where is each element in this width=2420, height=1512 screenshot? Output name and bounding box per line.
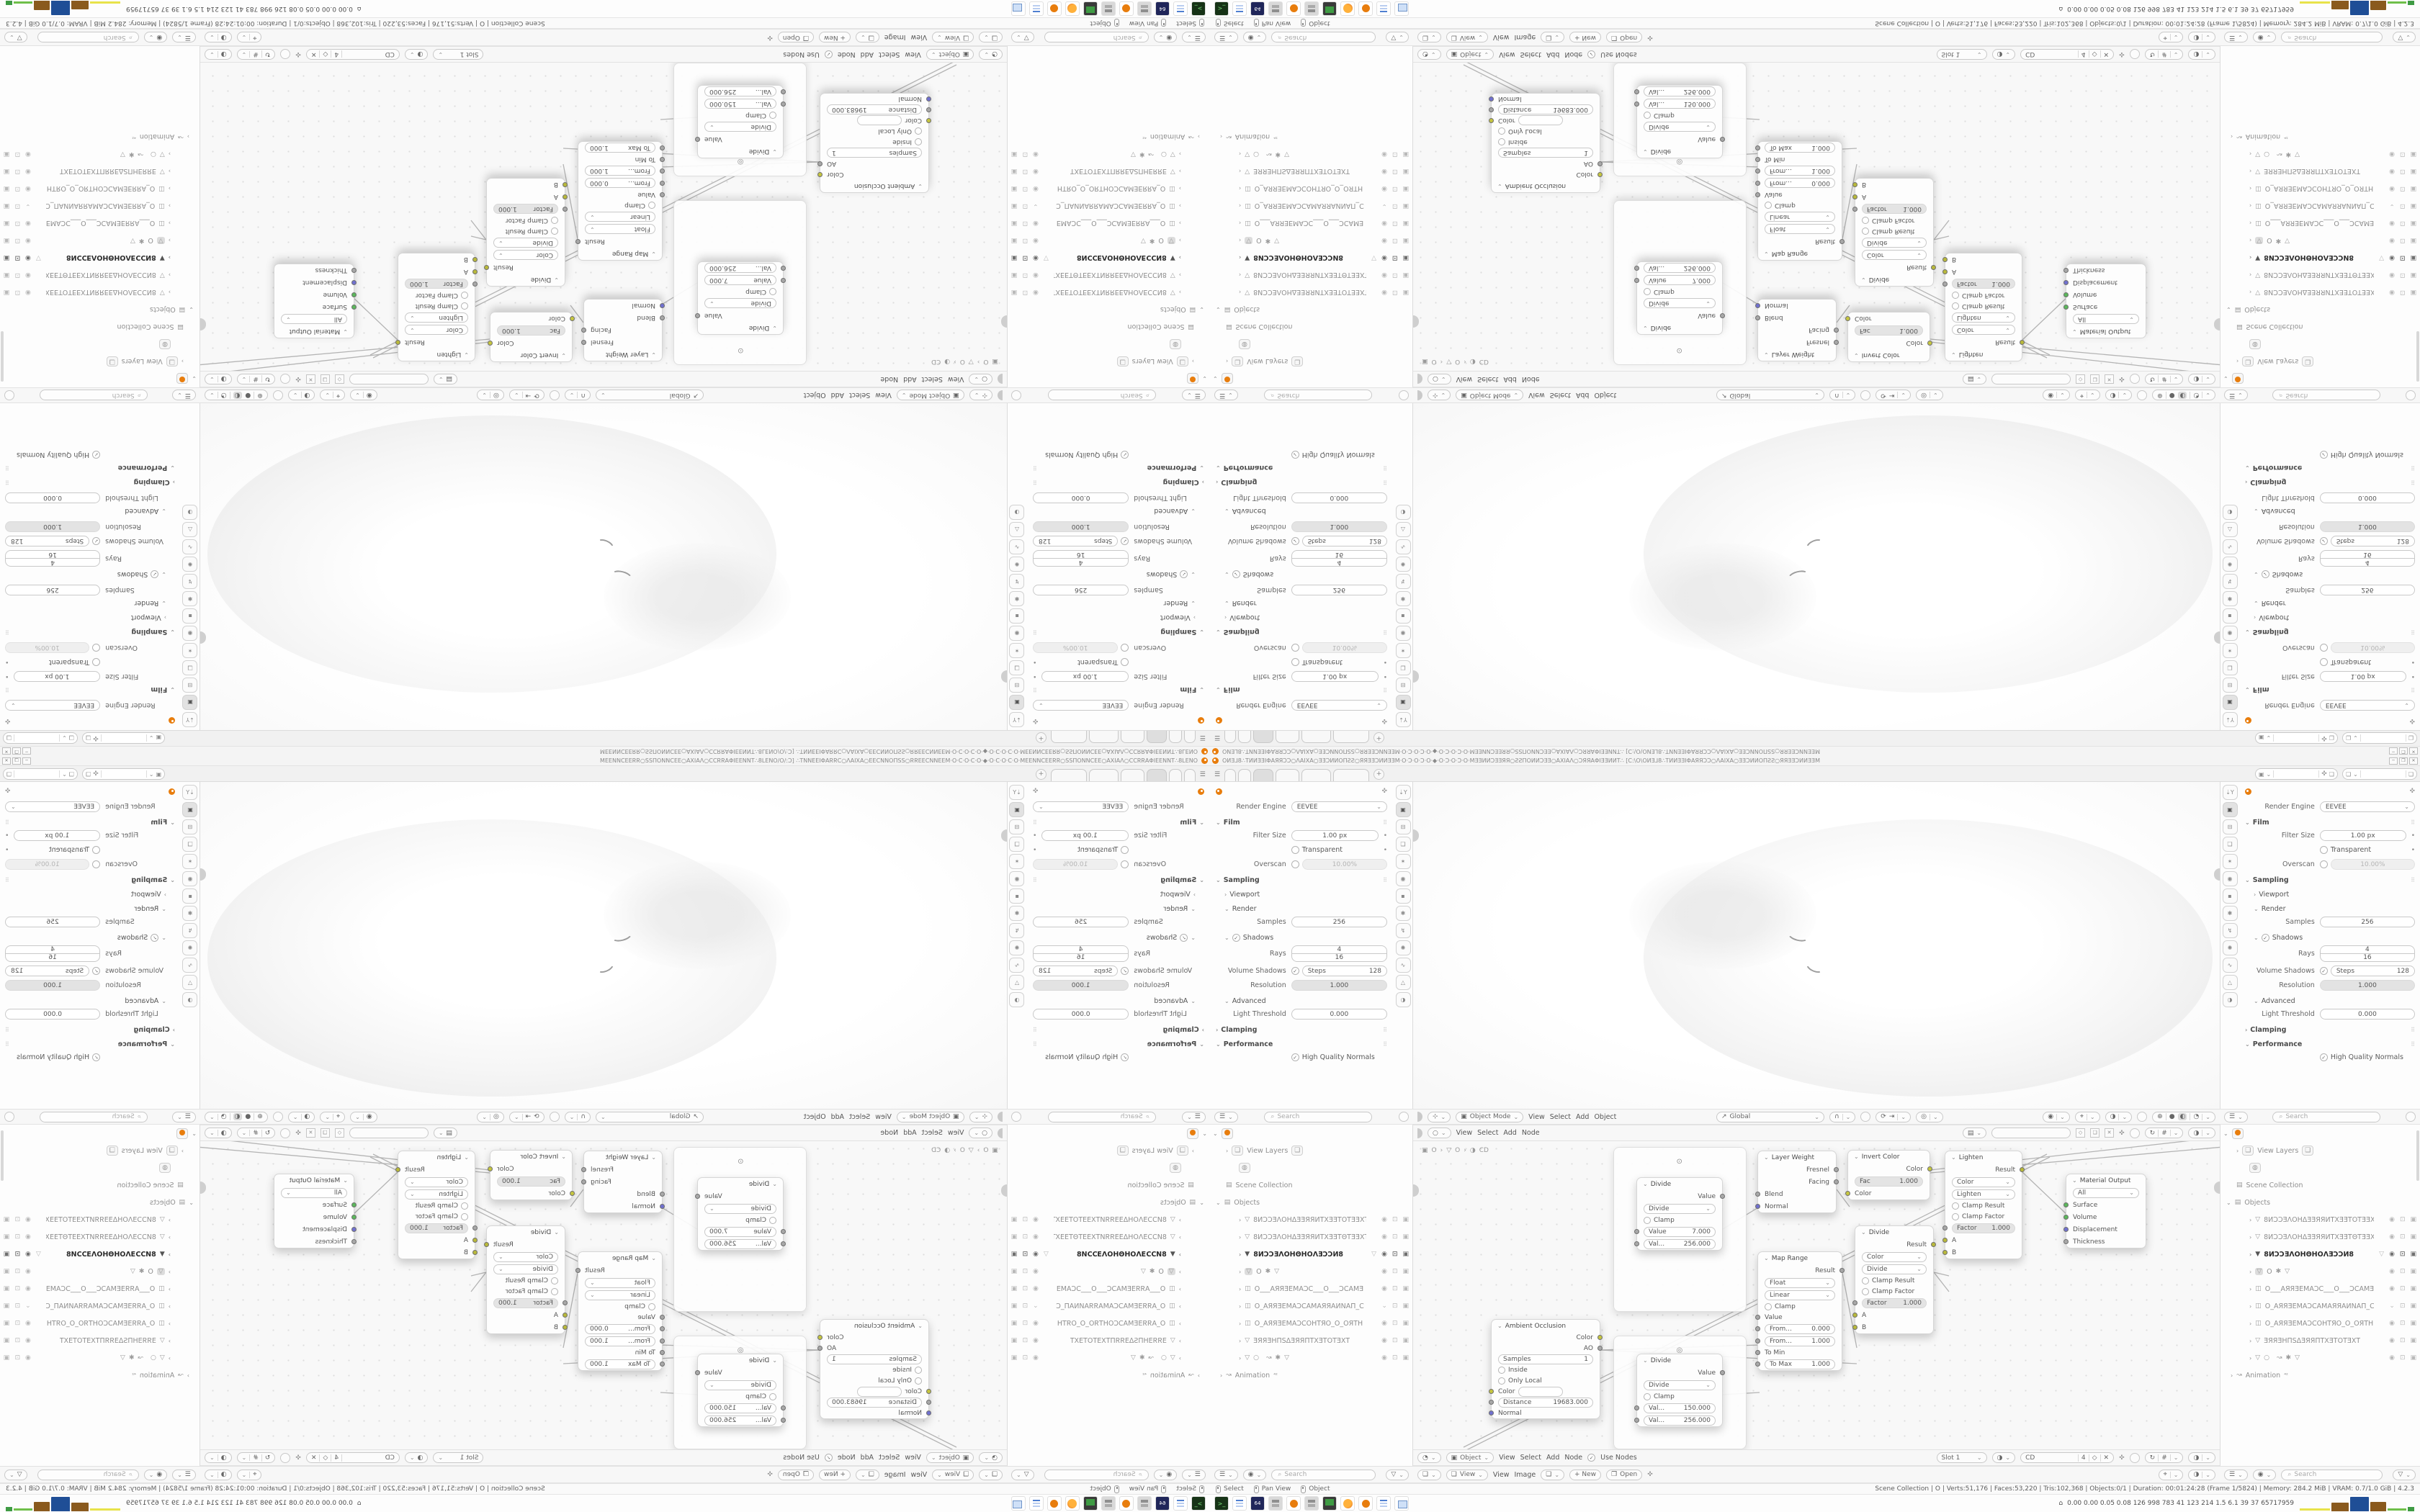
camera-icon[interactable]: ▣ <box>4 254 10 261</box>
add-workspace-button[interactable]: + <box>1036 769 1047 780</box>
tab-output-icon[interactable]: ⊟ <box>2223 819 2238 834</box>
blender-app-icon[interactable] <box>1119 1 1134 16</box>
render-engine-select[interactable]: EEVEE⌄ <box>2320 700 2415 711</box>
tab-output-icon[interactable]: ⊟ <box>183 678 198 693</box>
workspace-tab[interactable] <box>1301 769 1331 781</box>
collapse-icon[interactable]: ⌄ <box>2389 202 2395 210</box>
blender-app-icon[interactable] <box>1119 1496 1134 1511</box>
tab-world-icon[interactable]: ◉ <box>1010 871 1025 886</box>
outliner-object-row[interactable]: ›▽8ИƆƆƎΛΟΗΔƎƎЯЯИΤΧƎƎΤΘΤƎƎΧΤ◉⊡▣ <box>2220 1228 2420 1246</box>
socket-color-out[interactable] <box>488 341 493 346</box>
tab-scene-icon[interactable]: ✶ <box>2223 854 2238 869</box>
fake-user-icon[interactable]: ◇ <box>323 51 331 58</box>
gizmos-button[interactable]: ⌖⌄ <box>237 1470 262 1480</box>
clamp-factor-checkbox[interactable] <box>1952 292 1959 300</box>
viewport-3d[interactable] <box>200 403 1007 730</box>
filter-size-field[interactable]: 1.00 px <box>14 830 100 841</box>
fake-user-icon[interactable]: ◇ <box>2076 1128 2085 1138</box>
pin-icon[interactable]: ✜ <box>295 51 301 58</box>
tab-object-icon[interactable]: ▪ <box>183 888 198 904</box>
menu-node[interactable]: Node <box>838 50 856 58</box>
hq-normals-checkbox[interactable]: ✓ <box>1291 1053 1299 1061</box>
tab-filter-icon[interactable]: ⇣Y <box>2223 785 2238 800</box>
outliner-root[interactable]: ⌄ <box>2220 370 2420 387</box>
section-shadows[interactable]: ⌄✓Shadows <box>5 934 166 942</box>
maximize-button[interactable]: ❐ <box>12 757 21 765</box>
camera-icon[interactable]: ▣ <box>1011 168 1018 175</box>
fake-user-icon[interactable]: ◇ <box>335 374 344 384</box>
clamp-checkbox[interactable] <box>648 1303 655 1310</box>
eye-icon[interactable]: ◉ <box>25 289 31 296</box>
calculator-icon[interactable] <box>1137 1496 1152 1511</box>
menu-select[interactable]: Select <box>922 375 943 383</box>
outliner-object-row-selected[interactable]: ›▽O✱▽◉⊡▣ <box>2220 1263 2420 1280</box>
outliner-scene-collection[interactable]: ▤Scene Collection <box>0 1176 200 1194</box>
outliner-object-row[interactable]: ›◫O_АЯЯƎEMАƆCOHTЯO_O_OЯTH◉⊡▣ <box>1210 1315 1412 1332</box>
tab-output-icon[interactable]: ⊟ <box>1396 819 1411 834</box>
data-type-select[interactable]: Color⌄ <box>1862 1252 1927 1262</box>
socket-result-out[interactable] <box>1931 1242 1936 1247</box>
camera-icon[interactable]: ▣ <box>1011 1251 1018 1258</box>
camera-icon[interactable]: ▣ <box>4 1285 10 1292</box>
section-shadows[interactable]: ⌄✓Shadows <box>5 570 166 578</box>
socket-from-min-in[interactable] <box>660 1326 665 1331</box>
eye-icon[interactable]: ◉ <box>1033 271 1039 279</box>
text-editor-icon-2[interactable] <box>1029 1 1044 16</box>
section-render[interactable]: ⌄Render <box>1033 599 1196 607</box>
toolbar-toggle[interactable] <box>1413 670 1419 683</box>
copy-icon[interactable]: ❏ <box>86 735 91 742</box>
shader-type-select[interactable]: ▣Object⌄ <box>1446 1452 1494 1463</box>
eye-icon[interactable]: ◉ <box>25 220 31 227</box>
search-input[interactable]: ⌕Search <box>1044 1470 1149 1480</box>
outliner-object-row[interactable]: ›◫O___АЯЯƎEMАƆC___O___ƆCАMƎ◉⊡▣ <box>1210 1280 1412 1297</box>
transform-pivot-button[interactable]: ⟳⇥⌄ <box>1875 390 1911 401</box>
eye-icon[interactable]: ◉ <box>2389 1320 2395 1327</box>
outliner-object-row[interactable]: ›◫O_АЯЯƎEMАƆCAMАЯЯАИNАΠ_C⌄⊡▣ <box>1210 1297 1412 1315</box>
menu-node[interactable]: Node <box>1522 375 1540 383</box>
target-select[interactable]: All⌄ <box>2073 1188 2139 1198</box>
tab-scene-icon[interactable]: ✶ <box>1396 854 1411 869</box>
editor-type-button[interactable]: ◔⌄ <box>979 49 1003 60</box>
node-divide-2[interactable]: ⌄Divide Value Divide⌄ Clamp Val...150.00… <box>1636 1354 1723 1427</box>
camera-icon[interactable]: ▣ <box>1402 168 1409 175</box>
socket-value-out[interactable] <box>695 1370 700 1375</box>
outliner-world[interactable]: ◍ <box>0 336 200 353</box>
socket-value-in[interactable] <box>781 1229 786 1234</box>
section-performance[interactable]: ⌄Performance⠿ <box>2245 1040 2415 1048</box>
monitor-icon[interactable] <box>1322 1496 1337 1511</box>
camera-icon[interactable]: ▣ <box>1011 1268 1018 1275</box>
shading-mode-switch[interactable]: ⊕●◐◔⌄ <box>2152 390 2215 401</box>
outliner-object-row[interactable]: ›◫O_АЯЯƎEMАƆCOHTЯO_O_OЯTH◉⊡▣ <box>0 1315 200 1332</box>
samples-field[interactable]: Samples1 <box>827 1354 922 1364</box>
outliner-view-layers[interactable]: ›❏View Layers❏ <box>1008 1142 1210 1159</box>
close-button[interactable]: ✕ <box>2409 757 2418 765</box>
resolution-slider[interactable]: 1.000 <box>1033 980 1129 991</box>
from-min-field[interactable]: From...0.000 <box>1765 1324 1835 1334</box>
section-performance[interactable]: ⌄Performance⠿ <box>5 1040 175 1048</box>
clamp-checkbox[interactable] <box>769 289 776 296</box>
terminal-icon[interactable]: >_ <box>1191 1496 1206 1511</box>
volume-shadows-checkbox[interactable]: ✓ <box>92 537 100 545</box>
screen-icon[interactable]: ⊡ <box>1392 1320 1398 1327</box>
snap-grid-button[interactable]: ↻#⌄ <box>2145 1452 2184 1463</box>
search-input[interactable]: ⌕Search <box>1048 390 1156 401</box>
interpolation-select[interactable]: Linear⌄ <box>1765 1290 1835 1300</box>
workspace-tab[interactable] <box>1276 731 1299 743</box>
section-advanced[interactable]: ⌄Advanced <box>5 997 166 1005</box>
snapping-toggle[interactable] <box>280 374 290 384</box>
pin-icon[interactable]: ✜ <box>295 1130 301 1137</box>
rays-field[interactable]: 4 <box>5 945 100 954</box>
view-layer-selector[interactable]: ❏⌄ ❏ <box>3 732 78 744</box>
tab-object-icon[interactable]: ▪ <box>1010 608 1025 624</box>
interpolation-select[interactable]: Linear⌄ <box>585 212 655 222</box>
menu-view[interactable]: View <box>875 1113 892 1121</box>
outliner-object-row[interactable]: ›▽ƎЯЯƎHΠSΔƎЯЯΠΤΧƎΤΟΤƎΧΤ◉⊡▣ <box>1008 163 1210 180</box>
section-viewport[interactable]: ›Viewport <box>2254 613 2415 621</box>
overscan-field[interactable]: 10.00% <box>5 642 89 653</box>
new-image-button[interactable]: + New <box>819 32 851 43</box>
menu-view[interactable]: View <box>911 34 928 42</box>
screen-icon[interactable]: ⊡ <box>15 271 21 279</box>
socket-a-in[interactable] <box>1942 270 1948 275</box>
search-input[interactable]: ⌕Search <box>40 1112 148 1122</box>
blend-mode-select[interactable]: Lighten⌄ <box>1952 313 2015 323</box>
steps-field[interactable]: 16 <box>2320 954 2415 962</box>
outliner-object-row[interactable]: ›◫O_АЯЯƎEMАƆCOHTЯO_O_OЯTH◉⊡▣ <box>1008 1315 1210 1332</box>
copy-icon[interactable]: ❏ <box>6 771 12 778</box>
menu-object[interactable]: Object <box>804 1113 826 1121</box>
tab-material-icon[interactable]: ◑ <box>2223 505 2238 520</box>
pin-icon[interactable]: ✜ <box>767 34 773 41</box>
material-browse-button[interactable]: ◑⌄ <box>1992 49 2016 60</box>
tab-filter-icon[interactable]: ⇣Y <box>1010 712 1025 727</box>
menu-view[interactable]: View <box>1499 1454 1515 1462</box>
tab-modifiers-icon[interactable]: ✱ <box>1010 591 1025 606</box>
snap-grid-button[interactable]: ↻#⌄ <box>237 1452 276 1463</box>
search-input[interactable]: ⌕Search <box>1264 390 1372 401</box>
fac-slider[interactable]: Fac1.000 <box>497 326 565 336</box>
tab-particles-icon[interactable]: ↯ <box>183 574 198 589</box>
eye-icon[interactable]: ◉ <box>25 150 31 158</box>
operation-select[interactable]: Divide⌄ <box>704 299 776 309</box>
outliner-scene-collection[interactable]: ▤Scene Collection <box>2220 318 2420 336</box>
screen-icon[interactable]: ⊡ <box>15 185 21 192</box>
socket-value-in[interactable] <box>1634 1229 1639 1234</box>
camera-icon[interactable]: ▣ <box>2410 271 2416 279</box>
slot-select[interactable]: Slot 1⌄ <box>1937 49 1987 60</box>
socket-color-out[interactable] <box>1597 1335 1603 1340</box>
snapping-toggle[interactable] <box>280 1453 290 1463</box>
screen-icon[interactable]: ⊡ <box>2400 1216 2406 1223</box>
overlays-button[interactable]: ◑⌄ <box>2105 1112 2133 1122</box>
clamp-factor-checkbox[interactable] <box>1952 1213 1959 1220</box>
camera-icon[interactable]: ▣ <box>1402 271 1409 279</box>
value-field[interactable]: Val...150.000 <box>704 99 776 109</box>
outliner-object-row[interactable]: ›◫O_АЯЯƎEMАƆCAMАЯЯАИNАΠ_C⌄⊡▣ <box>1210 197 1412 215</box>
filter-size-field[interactable]: 1.00 px <box>14 671 100 682</box>
outliner-object-row[interactable]: ›◫O___АЯЯƎEMАƆC___O___ƆCАMƎ◉⊡▣ <box>1008 215 1210 232</box>
menu-node[interactable]: Node <box>1564 1454 1582 1462</box>
scene-selector[interactable]: ▣⌄ ✜ ❏ <box>82 732 165 744</box>
outliner-view-layers[interactable]: ›❏View Layers❏ <box>2220 1142 2420 1159</box>
overscan-checkbox[interactable] <box>2320 644 2328 652</box>
eye-icon[interactable]: ◉ <box>1033 185 1039 192</box>
editor-type-button[interactable]: ○⌄ <box>969 374 992 384</box>
calculator-icon-2[interactable] <box>1101 1496 1116 1511</box>
socket-to-max-in[interactable] <box>660 1362 665 1367</box>
menu-add[interactable]: Add <box>1503 1129 1516 1137</box>
eye-icon[interactable]: ◉ <box>1033 1354 1039 1362</box>
tab-filter-icon[interactable]: ⇣Y <box>2223 712 2238 727</box>
menu-object[interactable]: Object <box>804 392 826 400</box>
distance-field[interactable]: Distance19683.000 <box>1498 1398 1593 1408</box>
outliner-object-row[interactable]: ›◫O_АЯЯƎEMАƆCOHTЯO_O_OЯTH◉⊡▣ <box>2220 180 2420 197</box>
camera-icon[interactable]: ▣ <box>2410 1354 2416 1362</box>
outliner-objects-collection[interactable]: ⌄▤Objects <box>2220 301 2420 318</box>
data-type-select[interactable]: Float⌄ <box>1765 225 1835 235</box>
value-field[interactable]: Val...256.000 <box>1644 87 1716 97</box>
xray-button[interactable] <box>2137 390 2147 400</box>
firefox-icon[interactable] <box>1340 1 1355 16</box>
clamp-checkbox[interactable] <box>1644 289 1651 296</box>
tab-world-icon[interactable]: ◉ <box>1396 871 1411 886</box>
section-shadows[interactable]: ⌄✓Shadows <box>1224 570 1387 578</box>
search-input[interactable]: ⌕Search <box>37 32 139 43</box>
search-input[interactable]: ⌕Search <box>2272 390 2380 401</box>
eye-icon[interactable]: ◉ <box>2389 185 2395 192</box>
steps-field[interactable]: 16 <box>5 954 100 962</box>
orientation-select[interactable]: ↗Global⌄ <box>596 390 704 401</box>
tab-material-icon[interactable]: ◑ <box>183 505 198 520</box>
outliner-object-row-selected[interactable]: ›▽O✱▽◉⊡▣ <box>2220 232 2420 249</box>
value-field[interactable]: Val...256.000 <box>704 264 776 274</box>
pin-icon[interactable]: ✜ <box>295 1454 301 1462</box>
render-engine-select[interactable]: EEVEE⌄ <box>5 700 100 711</box>
volume-steps-field[interactable]: Steps128 <box>2331 966 2415 976</box>
light-threshold-field[interactable]: 0.000 <box>1033 492 1129 503</box>
overlays-button[interactable]: ◑⌄ <box>2188 374 2215 384</box>
tab-modifiers-icon[interactable]: ✱ <box>2223 906 2238 921</box>
overscan-field[interactable]: 10.00% <box>2331 642 2415 653</box>
outliner-root[interactable]: ⌄ <box>2220 1125 2420 1142</box>
eye-icon[interactable]: ◉ <box>1033 1233 1039 1241</box>
node-lighten[interactable]: ⌄Lighten Result Color⌄ Lighten⌄ Clamp Re… <box>1945 253 2022 361</box>
outliner-root[interactable]: ⌄ <box>0 370 200 387</box>
fac-slider[interactable]: Fac1.000 <box>1855 1176 1923 1187</box>
editor-type-button[interactable]: ☰⌄ <box>172 1112 196 1122</box>
viewport-3d[interactable] <box>1413 782 2220 1109</box>
to-max-field[interactable]: To Max1.000 <box>1765 143 1835 153</box>
material-name-field[interactable] <box>349 374 429 384</box>
tab-object-icon[interactable]: ▪ <box>2223 608 2238 624</box>
light-threshold-field[interactable]: 0.000 <box>1291 1009 1387 1020</box>
tab-object-icon[interactable]: ▪ <box>183 608 198 624</box>
screen-icon[interactable]: ⊡ <box>1392 1233 1398 1241</box>
viewport-3d[interactable] <box>200 782 1007 1109</box>
menu-node[interactable]: Node <box>1522 1129 1540 1137</box>
pin-icon[interactable]: ✜ <box>1381 788 1387 795</box>
transparent-checkbox[interactable] <box>92 846 100 854</box>
eye-icon[interactable]: ◉ <box>1033 150 1039 158</box>
snapping-toggle[interactable] <box>2130 50 2140 60</box>
socket-ao-out[interactable] <box>817 162 823 167</box>
shader-node-editor[interactable]: ▣O › ▽O › ◑CD ⊙ ◎ ⌄Divide Value Divide⌄ … <box>200 63 1007 371</box>
tab-particles-icon[interactable]: ↯ <box>2223 574 2238 589</box>
socket-result-out[interactable] <box>484 1242 489 1247</box>
blend-mode-select[interactable]: Lighten⌄ <box>1952 1189 2015 1200</box>
section-shadows[interactable]: ⌄✓Shadows <box>2254 570 2415 578</box>
menu-add[interactable]: Add <box>1546 1454 1559 1462</box>
factor-slider[interactable]: Factor1.000 <box>1952 279 2015 289</box>
copy-icon[interactable]: ❏ <box>2408 771 2414 778</box>
clamp-checkbox[interactable] <box>1765 202 1772 210</box>
eye-icon[interactable]: ◉ <box>2389 1285 2395 1292</box>
hq-normals-checkbox[interactable]: ✓ <box>1291 451 1299 459</box>
rays-field[interactable]: 4 <box>1033 945 1129 954</box>
screen-icon[interactable]: ⊡ <box>15 1337 21 1344</box>
resolution-slider[interactable]: 1.000 <box>1033 521 1129 532</box>
operation-select[interactable]: Divide⌄ <box>1644 1204 1716 1214</box>
socket-surface-in[interactable] <box>2063 1202 2069 1207</box>
socket-a-in[interactable] <box>1852 195 1857 200</box>
tab-world-icon[interactable]: ◉ <box>1010 626 1025 641</box>
screen-icon[interactable]: ⊡ <box>1023 1320 1028 1327</box>
light-threshold-field[interactable]: 0.000 <box>5 492 100 503</box>
screen-icon[interactable]: ⊡ <box>1392 185 1398 192</box>
outliner-objects-collection[interactable]: ⌄▤Objects <box>1210 1194 1412 1211</box>
resolution-slider[interactable]: 1.000 <box>2320 980 2415 991</box>
menu-select[interactable]: Select <box>1550 392 1571 400</box>
value-field[interactable]: Value7.000 <box>704 1227 776 1237</box>
menu-add[interactable]: Add <box>1576 1113 1589 1121</box>
filter-icon[interactable]: ▽ <box>1371 254 1376 261</box>
socket-factor-in[interactable] <box>1852 1300 1857 1305</box>
menu-select[interactable]: Select <box>922 1129 943 1137</box>
outliner-object-row[interactable]: ›▽8ИƆƆƎΛΟΗΔƎƎЯЯИΤΧƎƎΤΟΤƎƎΧΤ◉⊡▣ <box>0 1211 200 1228</box>
outliner-root[interactable]: ⌄ <box>1008 1125 1210 1142</box>
image-mode-select[interactable]: ❏View⌄ <box>932 32 974 43</box>
socket-color-out[interactable] <box>1927 1166 1932 1171</box>
section-clamping[interactable]: ›Clamping⠿ <box>2245 1026 2415 1034</box>
screen-icon[interactable]: ⊡ <box>2400 237 2406 244</box>
camera-icon[interactable]: ▣ <box>1402 1285 1409 1292</box>
editor-type-button[interactable]: ☰⌄ <box>1182 1470 1206 1480</box>
screen-icon[interactable]: ⊡ <box>1023 1337 1028 1344</box>
resolution-slider[interactable]: 1.000 <box>2320 521 2415 532</box>
tab-object-icon[interactable]: ▪ <box>1396 608 1411 624</box>
socket-b-in[interactable] <box>1942 1250 1948 1255</box>
camera-icon[interactable]: ▣ <box>2410 1233 2416 1241</box>
filter-button[interactable]: ▽⌄ <box>1011 1470 1034 1480</box>
camera-icon[interactable]: ▣ <box>2410 1268 2416 1275</box>
socket-blend-in[interactable] <box>1755 1192 1760 1197</box>
screen-icon[interactable]: ⊡ <box>2400 185 2406 192</box>
camera-icon[interactable]: ▣ <box>1011 202 1018 210</box>
outliner-object-row-active[interactable]: ›▼8ИƆƆƎΛΟΗΘΗΟΛƎƆƆИ8▽◉⊡▣ <box>0 1246 200 1263</box>
tab-physics-icon[interactable]: ✺ <box>1396 940 1411 955</box>
outliner-view-layers[interactable]: ›❏View Layers❏ <box>0 353 200 370</box>
pin-icon[interactable]: ✜ <box>5 788 11 795</box>
outliner-object-row[interactable]: ›◫O_АЯЯƎEMАƆCOHTЯO_O_OЯTH◉⊡▣ <box>2220 1315 2420 1332</box>
node-divide-2[interactable]: ⌄Divide Value Divide⌄ Clamp Val...150.00… <box>697 1354 784 1427</box>
workspace-tab-active[interactable] <box>1147 731 1167 743</box>
tab-output-icon[interactable]: ⊟ <box>1396 678 1411 693</box>
options-button[interactable] <box>1011 390 1021 400</box>
steps-field[interactable]: 16 <box>1291 954 1387 962</box>
add-workspace-button[interactable]: + <box>1036 732 1047 743</box>
node-layer-weight[interactable]: ⌄Layer Weight Fresnel Facing Blend Norma… <box>1757 1151 1837 1213</box>
section-film[interactable]: ⌄Film⠿ <box>5 685 175 693</box>
text-editor-icon-2[interactable] <box>1029 1496 1044 1511</box>
clamp-checkbox[interactable] <box>769 1217 776 1224</box>
copy-icon[interactable]: ❏ <box>321 1128 330 1138</box>
outliner-object-row[interactable]: ›▽8ИƆƆƎΛΟΗΔƎƎЯЯИΤΧƎƎΤΘΤƎƎΧΤ◉⊡▣ <box>2220 266 2420 284</box>
section-render[interactable]: ⌄Render <box>5 905 166 913</box>
socket-value-in[interactable] <box>660 1315 665 1320</box>
outliner-animation[interactable]: ›↝Animation⁴² <box>2220 1367 2420 1384</box>
factor-slider[interactable]: Factor1.000 <box>405 279 468 289</box>
proportional-edit-button[interactable] <box>1860 390 1870 400</box>
menu-image[interactable]: Image <box>884 34 906 42</box>
text-editor-icon[interactable] <box>1232 1496 1247 1511</box>
screen-icon[interactable]: ⊡ <box>1392 1216 1398 1223</box>
node-map-range[interactable]: ⌄Map Range Result Float⌄ Linear⌄ Clamp V… <box>578 1251 663 1371</box>
tab-output-icon[interactable]: ⊟ <box>183 819 198 834</box>
screen-icon[interactable]: ⊡ <box>2400 1337 2406 1344</box>
editor-type-button[interactable]: ☰⌄ <box>172 1470 196 1480</box>
tab-filter-icon[interactable]: ⇣Y <box>183 712 198 727</box>
tab-object-icon[interactable]: ▪ <box>1010 888 1025 904</box>
outliner-object-row[interactable]: ›▽○↝✱▽◉⊡▣ <box>0 145 200 163</box>
eye-icon[interactable]: ◉ <box>25 1268 31 1275</box>
outliner-world[interactable]: ◍ <box>2220 336 2420 353</box>
screen-icon[interactable]: ⊡ <box>1023 202 1028 210</box>
tab-filter-icon[interactable]: ⇣Y <box>1396 712 1411 727</box>
hq-normals-checkbox[interactable]: ✓ <box>2320 451 2328 459</box>
target-select[interactable]: All⌄ <box>281 1188 347 1198</box>
node-map-range[interactable]: ⌄Map Range Result Float⌄ Linear⌄ Clamp V… <box>1757 1251 1842 1371</box>
menu-add[interactable]: Add <box>861 1454 874 1462</box>
socket-factor-in[interactable] <box>1942 282 1948 287</box>
volume-shadows-checkbox[interactable]: ✓ <box>1121 537 1129 545</box>
editor-type-button[interactable]: ☰⌄ <box>2224 32 2248 43</box>
operation-select[interactable]: Divide⌄ <box>1644 299 1716 309</box>
terminal-icon[interactable]: >_ <box>1214 1 1229 16</box>
floppy-icon[interactable]: 64 <box>1250 1496 1265 1511</box>
sidebar-toggle[interactable] <box>200 631 206 644</box>
to-max-field[interactable]: To Max1.000 <box>585 1359 655 1369</box>
volume-shadows-checkbox[interactable]: ✓ <box>1291 967 1299 975</box>
tab-view-layer-icon[interactable]: ❏ <box>1010 660 1025 675</box>
editor-type-button[interactable]: ⊹⌄ <box>1428 390 1451 401</box>
node-divide-2[interactable]: ⌄Divide Value Divide⌄ Clamp Val...150.00… <box>697 85 784 158</box>
data-type-select[interactable]: Color⌄ <box>1952 1177 2015 1187</box>
hq-normals-checkbox[interactable]: ✓ <box>92 1053 100 1061</box>
fac-slider[interactable]: Fac1.000 <box>1855 326 1923 336</box>
editor-type-button[interactable]: ☰⌄ <box>1214 1112 1238 1122</box>
shading-mode-switch[interactable]: ⊕●◐◔⌄ <box>205 1112 268 1122</box>
menu-view[interactable]: View <box>1456 375 1473 383</box>
resolution-slider[interactable]: 1.000 <box>1291 521 1387 532</box>
editor-type-button[interactable]: ☰⌄ <box>1182 1112 1206 1122</box>
factor-slider[interactable]: Factor1.000 <box>493 204 558 215</box>
overlays-button[interactable]: ◑⌄ <box>2188 1470 2215 1480</box>
close-button[interactable]: ✕ <box>2 757 11 765</box>
copy-icon[interactable]: ❏ <box>2090 1128 2099 1138</box>
